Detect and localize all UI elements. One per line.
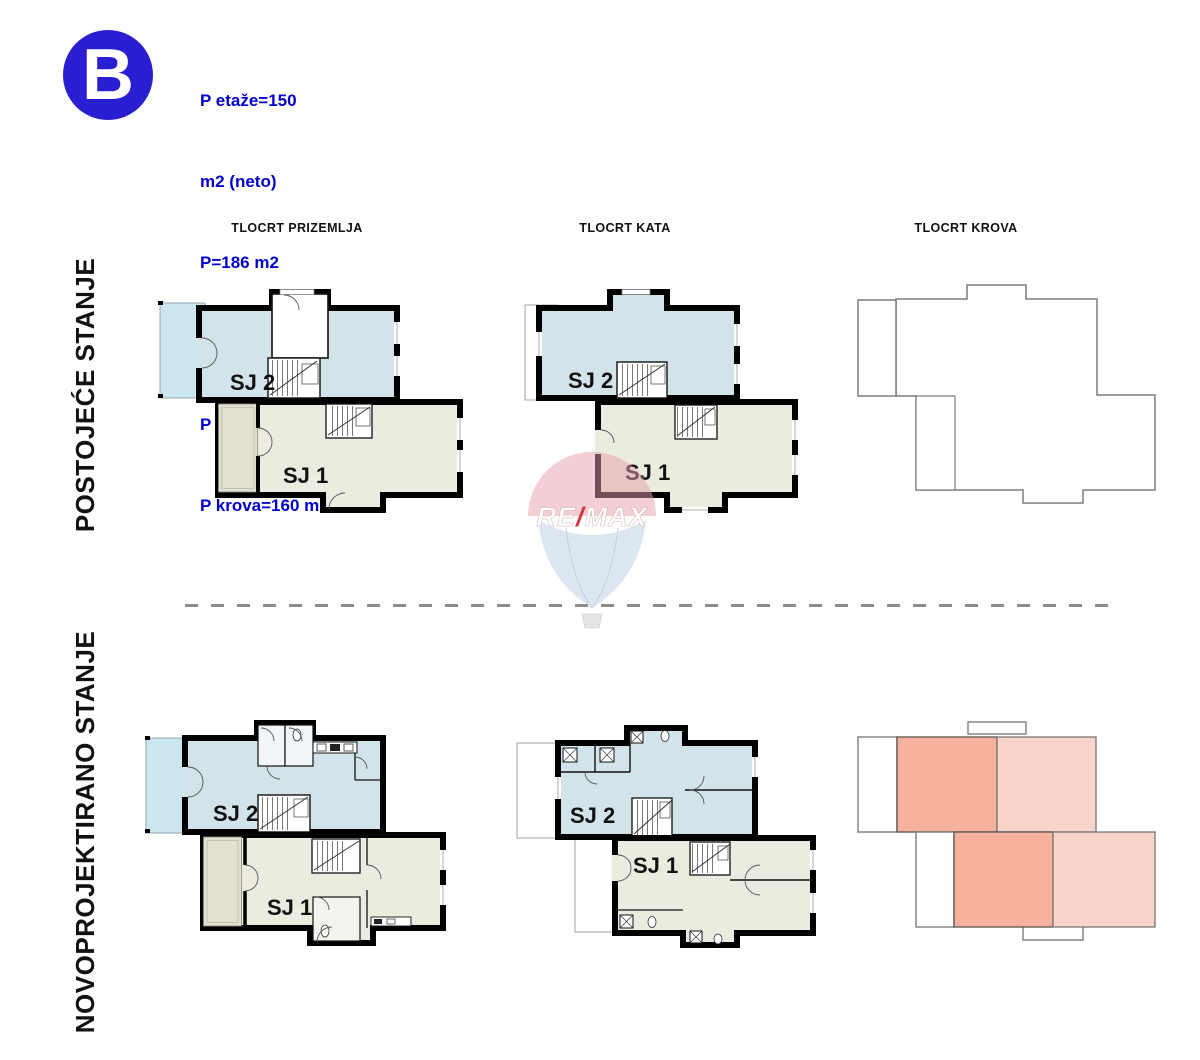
plan-new-roof [855,718,1165,946]
roof-tab-bottom [1023,926,1083,940]
stairs [258,795,310,832]
roof-panel-salmon-upper [897,737,997,832]
roof-terrace-outline [575,838,615,932]
roof-panel-pink-lower [1053,832,1155,927]
roof-outline-left-wing [858,300,896,396]
entry-hall [272,290,328,359]
window [622,290,650,295]
stairs [326,404,372,438]
plan-new-ground-floor: SJ 2 [145,715,465,965]
info-line: P=186 m2 [200,249,341,276]
stairs [690,842,730,875]
stairs [312,839,360,873]
plan-new-upper-floor: SJ 2 SJ [500,715,830,965]
info-line: m2 (neto) [200,168,341,195]
unit-label-sj2: SJ 2 [230,370,275,395]
unit-label-sj2: SJ 2 [568,368,613,393]
stairs [268,358,320,398]
stairs [617,362,667,398]
roof-terrace-outline [517,743,558,838]
unit-label-sj2: SJ 2 [213,801,258,826]
balloon-bottom-icon [538,520,646,608]
roof-panel-salmon-lower [954,832,1053,927]
column-header-upper-floor: TLOCRT KATA [505,221,745,235]
floorplan-sheet: B P etaže=150 m2 (neto) P=186 m2 (brutto… [0,0,1200,1060]
stairs [632,798,672,837]
column-header-roof: TLOCRT KROVA [846,221,1086,235]
sink-counter [371,917,411,926]
variant-badge: B [63,30,153,120]
terrace [219,404,258,492]
row-label-new-state: NOVOPROJEKTIRANO STANJE [60,652,110,1012]
roof-panel-white-upper [858,737,897,832]
info-line: P etaže=150 [200,87,341,114]
unit-label-sj1: SJ 1 [283,463,328,488]
roof-panel-pink-upper [997,737,1096,832]
roof-panel-white-lower [916,832,954,927]
unit-label-sj1: SJ 1 [267,895,312,920]
plan-existing-roof [855,282,1165,507]
watermark-text: RE/MAX [536,502,648,532]
unit-label-sj2: SJ 2 [570,803,615,828]
roof-outline-lower-wing [916,396,955,490]
stairs [675,405,717,439]
roof-tab-top [968,722,1026,734]
variant-badge-letter: B [82,39,134,111]
remax-watermark: RE/MAX [516,428,668,633]
kitchen-counter [313,742,357,753]
row-label-existing-state: POSTOJEĆE STANJE [60,270,110,520]
balcony [145,736,185,833]
column-header-ground-floor: TLOCRT PRIZEMLJA [177,221,417,235]
terrace [204,837,242,926]
bathroom [313,897,360,942]
balloon-basket-icon [582,614,602,628]
unit-label-sj1: SJ 1 [633,853,678,878]
plan-existing-ground-floor: SJ 2 SJ 1 [150,280,465,520]
